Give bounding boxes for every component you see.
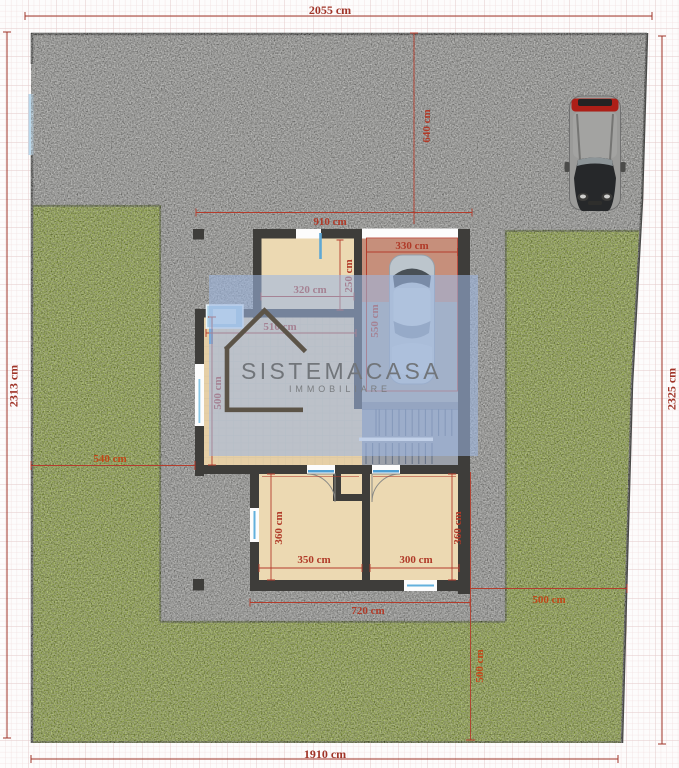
svg-text:IMMOBILIARE: IMMOBILIARE bbox=[289, 384, 391, 394]
svg-text:540 cm: 540 cm bbox=[93, 453, 126, 465]
svg-text:640 cm: 640 cm bbox=[421, 109, 433, 142]
svg-text:2325 cm: 2325 cm bbox=[665, 368, 679, 410]
svg-text:360 cm: 360 cm bbox=[273, 511, 285, 544]
svg-text:500 cm: 500 cm bbox=[474, 649, 486, 682]
svg-text:360 cm: 360 cm bbox=[452, 511, 464, 544]
svg-text:1910 cm: 1910 cm bbox=[304, 747, 346, 761]
svg-text:910 cm: 910 cm bbox=[313, 216, 346, 228]
svg-text:330 cm: 330 cm bbox=[395, 240, 428, 252]
svg-text:SISTEMACASA: SISTEMACASA bbox=[241, 358, 442, 384]
svg-text:350 cm: 350 cm bbox=[297, 554, 330, 566]
svg-text:500 cm: 500 cm bbox=[532, 594, 565, 606]
svg-text:720 cm: 720 cm bbox=[351, 605, 384, 617]
svg-text:2313 cm: 2313 cm bbox=[7, 365, 21, 407]
svg-text:2055 cm: 2055 cm bbox=[309, 3, 351, 17]
svg-text:300 cm: 300 cm bbox=[399, 554, 432, 566]
